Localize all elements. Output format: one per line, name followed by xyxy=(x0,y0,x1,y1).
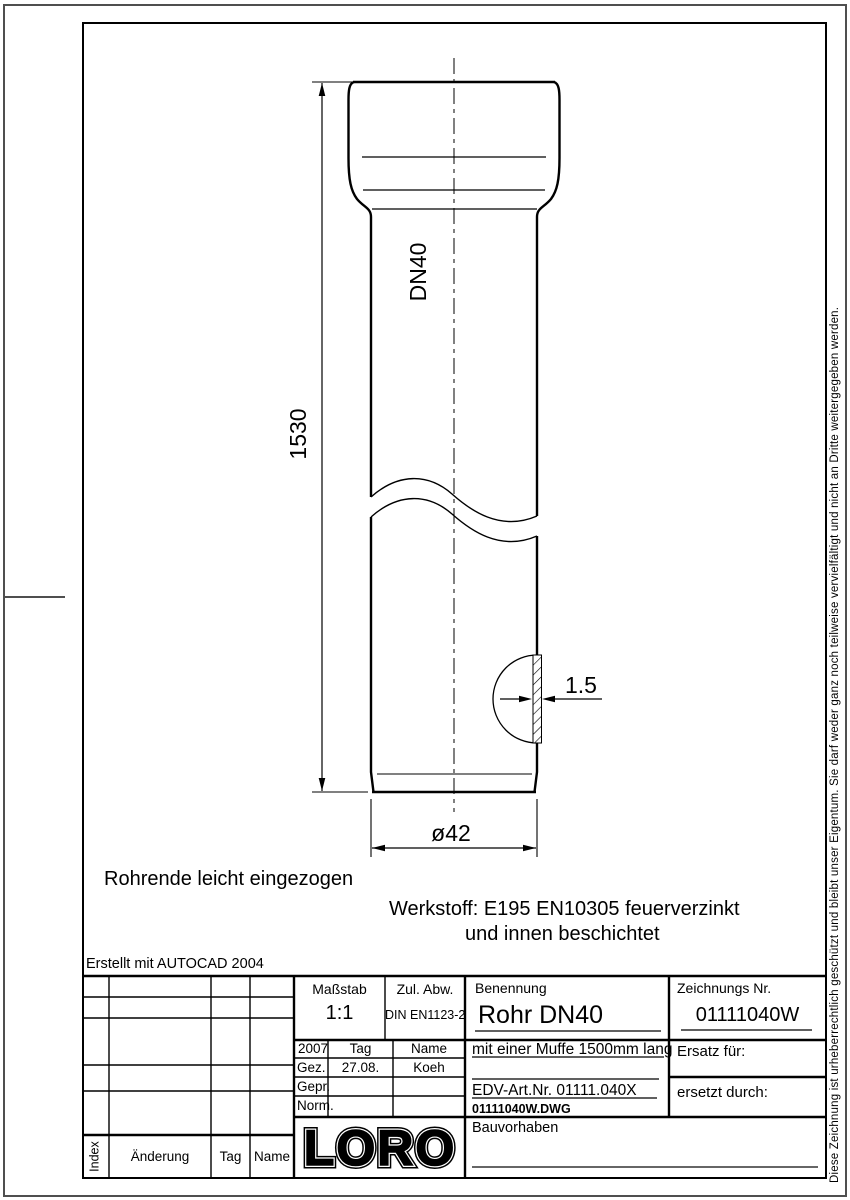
aenderung-header: Änderung xyxy=(109,1150,211,1164)
copyright-note: Diese Zeichnung ist urheberrechtlich ges… xyxy=(829,333,841,1183)
drawing-sheet: 1.5 1530 DN40 ø42 xyxy=(0,0,850,1200)
masstab-value: 1:1 xyxy=(294,1003,385,1024)
zeichnungs-nr-value: 01111040W xyxy=(669,1005,826,1026)
name2-header: Name xyxy=(250,1150,294,1164)
wall-section-detail: 1.5 xyxy=(493,655,602,743)
index-header: Index xyxy=(88,1126,101,1188)
gez-label: Gez. xyxy=(297,1061,326,1075)
note-created-with: Erstellt mit AUTOCAD 2004 xyxy=(86,957,264,972)
ersetzt-durch-label: ersetzt durch: xyxy=(677,1085,768,1101)
benennung-label: Benennung xyxy=(475,981,547,996)
note-material-line2: und innen beschichtet xyxy=(465,924,660,945)
pipe-nominal-label: DN40 xyxy=(405,243,431,302)
benennung-value: Rohr DN40 xyxy=(478,1002,603,1028)
dim-diameter: ø42 xyxy=(371,799,537,857)
norm-label: Norm. xyxy=(297,1099,334,1113)
gez-tag: 27.08. xyxy=(328,1061,393,1075)
zeichnungs-nr-label: Zeichnungs Nr. xyxy=(677,981,771,996)
dwg-file: 01111040W.DWG xyxy=(472,1103,571,1116)
zul-abw-value: DIN EN1123-2 xyxy=(385,1009,465,1022)
tag2-header: Tag xyxy=(211,1150,250,1164)
year-cell: 2007 xyxy=(298,1042,328,1056)
svg-text:LORO: LORO xyxy=(304,1120,456,1176)
name-header: Name xyxy=(393,1042,465,1056)
tag-header: Tag xyxy=(328,1042,393,1056)
note-pipe-end: Rohrende leicht eingezogen xyxy=(104,869,353,890)
note-material-line1: Werkstoff: E195 EN10305 feuerverzinkt xyxy=(389,899,740,920)
zul-abw-label: Zul. Abw. xyxy=(385,982,465,997)
dim-diameter-label: ø42 xyxy=(431,820,471,846)
subtitle-text: mit einer Muffe 1500mm lang xyxy=(472,1042,672,1058)
bauvorhaben-label: Bauvorhaben xyxy=(472,1121,558,1136)
dim-length-label: 1530 xyxy=(285,408,311,459)
loro-logo: LORO LORO LORO xyxy=(304,1120,456,1176)
masstab-label: Maßstab xyxy=(294,982,385,997)
dim-length: 1530 xyxy=(285,82,368,792)
dim-wall-thickness: 1.5 xyxy=(565,672,597,698)
ersatz-fuer-label: Ersatz für: xyxy=(677,1044,745,1060)
edv-art-nr: EDV-Art.Nr. 01111.040X xyxy=(472,1083,637,1099)
gez-name: Koeh xyxy=(393,1061,465,1075)
gepr-label: Gepr. xyxy=(297,1080,330,1094)
